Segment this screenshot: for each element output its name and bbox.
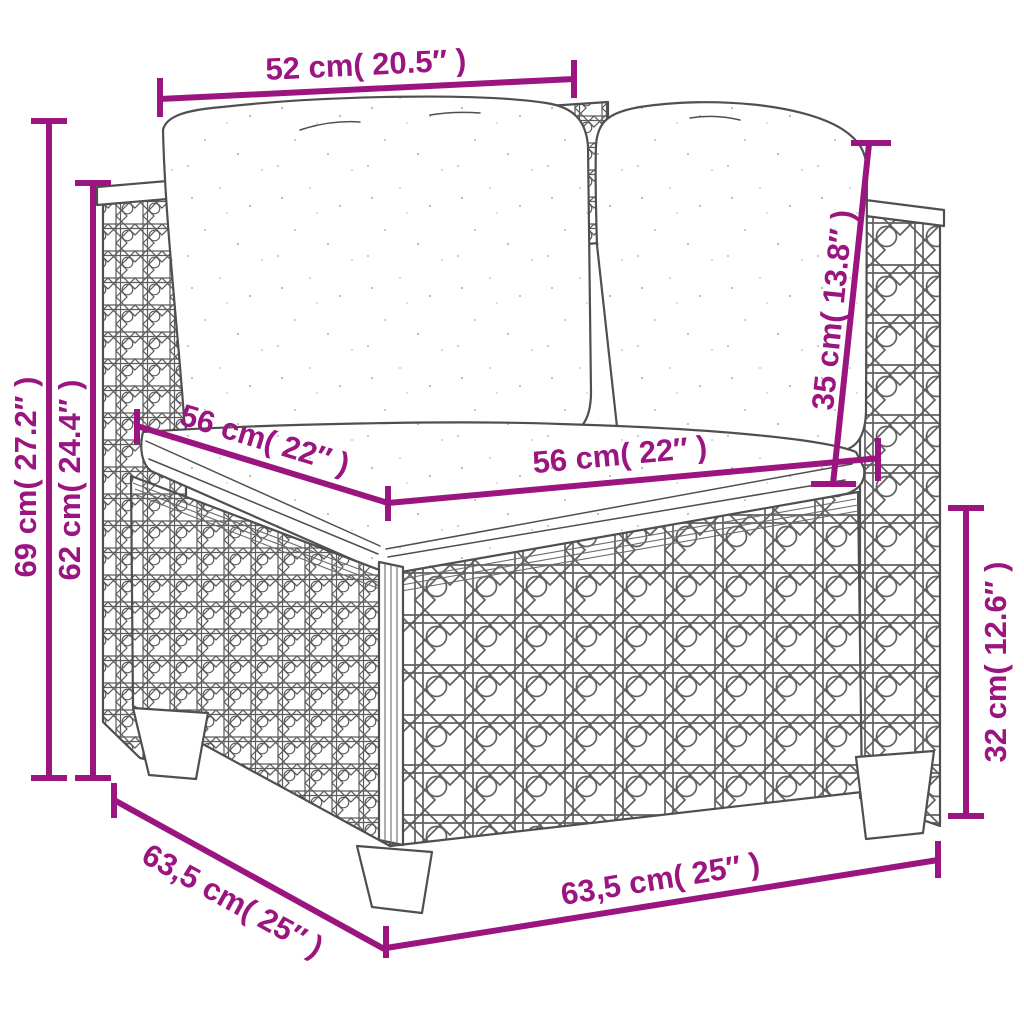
front-corner-leg: [357, 846, 432, 913]
dim-arm-height-label: 62 cm( 24.4″ ): [52, 380, 87, 581]
sofa-dimension-diagram: 52 cm( 20.5″ ) 69 cm( 27.2″ ) 62 cm( 24.…: [0, 0, 1024, 1024]
sofa-line-art: [97, 97, 944, 913]
dim-total-width: 63,5 cm( 25″ ): [386, 841, 938, 948]
right-leg: [856, 751, 934, 839]
dim-total-height-label: 69 cm( 27.2″ ): [8, 377, 43, 578]
dim-base-height-label: 32 cm( 12.6″ ): [978, 562, 1013, 763]
dim-top-back-width-label: 52 cm( 20.5″ ): [265, 42, 467, 87]
diagram-canvas: 52 cm( 20.5″ ) 69 cm( 27.2″ ) 62 cm( 24.…: [0, 0, 1024, 1024]
front-left-leg: [133, 708, 208, 779]
dim-base-height: 32 cm( 12.6″ ): [948, 508, 1013, 816]
right-armrest-weave: [860, 208, 940, 826]
left-back-cushion: [163, 97, 591, 449]
